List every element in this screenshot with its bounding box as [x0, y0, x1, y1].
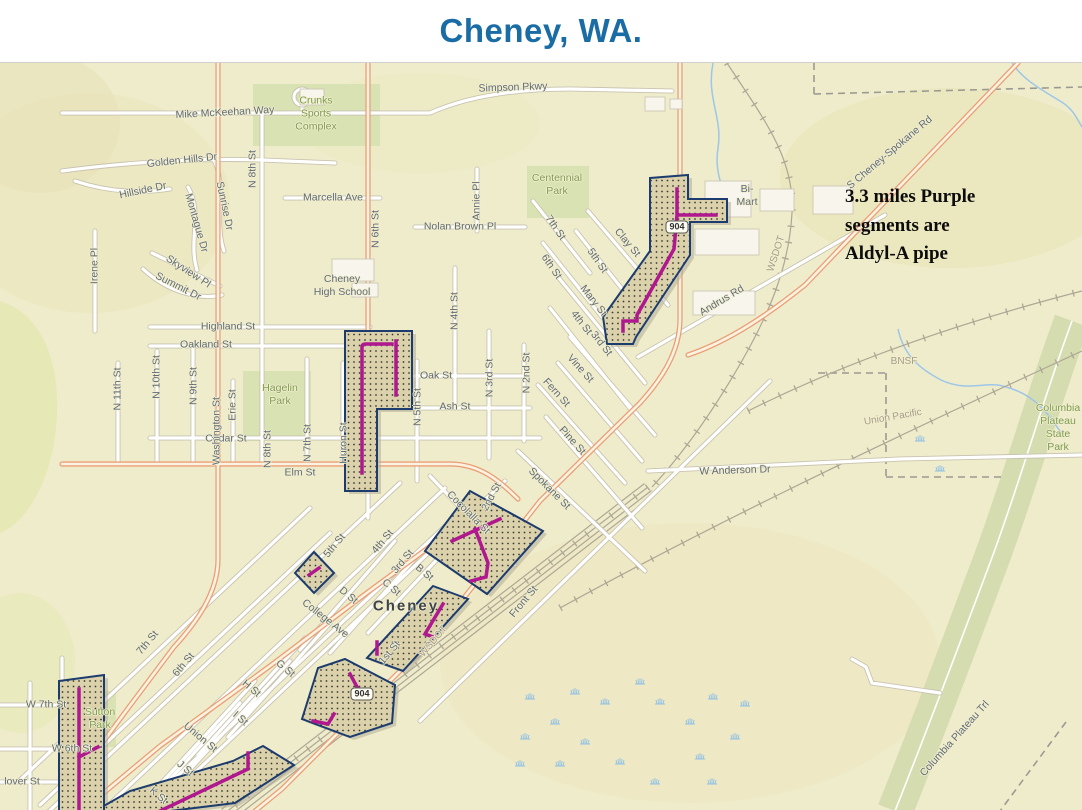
centennial-park-area [527, 166, 589, 218]
slide-header: Cheney, WA. [0, 0, 1082, 62]
aldyl-note-line: Aldyl-A pipe [845, 240, 1015, 269]
map-canvas [0, 63, 1082, 810]
aldyl-note-line: 3.3 miles Purple [845, 183, 1015, 212]
aldyl-polygon-west-strip [59, 675, 104, 810]
map-image[interactable]: Mike McKeehan WaySimpson PkwyCrunks Spor… [0, 62, 1082, 810]
hagelin-park-area [243, 371, 311, 441]
slide: Cheney, WA. [0, 0, 1082, 810]
aldyl-note-line: segments are [845, 212, 1015, 241]
page-title: Cheney, WA. [440, 12, 643, 50]
aldyl-note: 3.3 miles Purple segments are Aldyl-A pi… [845, 183, 1015, 269]
trail-corridor [895, 321, 1072, 810]
